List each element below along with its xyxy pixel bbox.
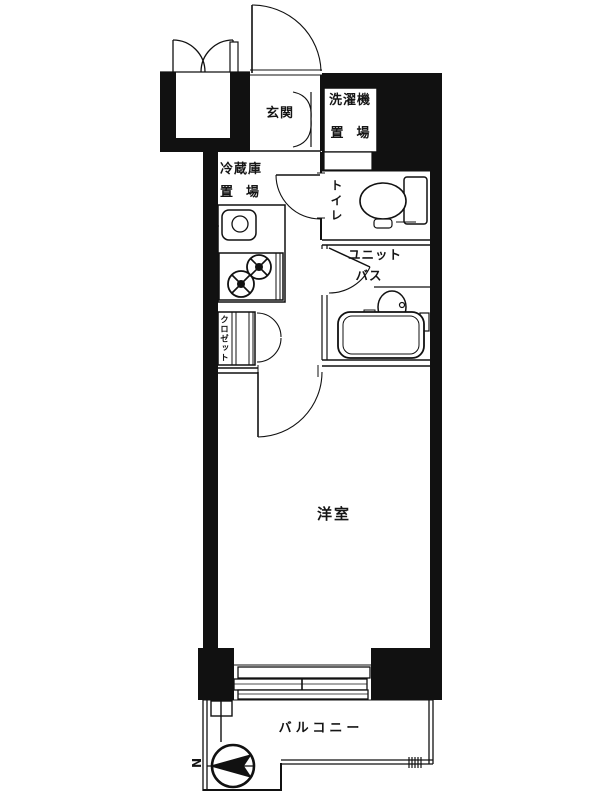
entrance-door-swing-arc (252, 5, 321, 71)
label-unit-bath-line2: バス (355, 270, 382, 283)
balcony-partition-hatch (409, 757, 421, 768)
wall-bottom-left-block (198, 648, 234, 700)
label-washer-line2: 置 場 (330, 127, 369, 140)
label-unit-bath-line1: ユニット (348, 249, 402, 262)
sink-faucet (215, 224, 219, 228)
sliding-window (234, 665, 371, 699)
label-fridge-line1: 冷蔵庫 (220, 163, 262, 176)
western-room-walls (218, 365, 322, 437)
entrance-jamb-post (230, 42, 238, 72)
toilet-base (374, 219, 392, 228)
label-genkan: 玄関 (266, 107, 294, 120)
floor-plan: 玄関 洗濯機 置 場 冷蔵庫 置 場 トイレ ユニット バス クロゼット 洋室 … (0, 0, 600, 800)
recess-above-toilet (324, 152, 372, 170)
closet-door-swing-arc (257, 313, 281, 337)
label-north: N (191, 758, 203, 768)
entrance (230, 5, 322, 75)
label-toilet: トイレ (330, 179, 342, 224)
label-western-room: 洋室 (317, 507, 351, 522)
closet-door-swing-arc (257, 338, 281, 362)
compass (207, 745, 254, 787)
floor-plan-drawing (0, 0, 600, 800)
kitchen (215, 205, 285, 302)
structural-walls (160, 72, 442, 700)
label-washer-line1: 洗濯機 (329, 94, 371, 107)
room-door-swing-arc (258, 372, 322, 437)
toilet-tank (404, 177, 427, 224)
label-balcony: バルコニー (279, 722, 364, 735)
bathtub (338, 312, 424, 358)
label-closet: クロゼット (219, 315, 228, 363)
label-fridge-line2: 置 場 (220, 186, 259, 199)
wall-meterbox-right (230, 72, 250, 152)
toilet-bowl (360, 183, 406, 219)
